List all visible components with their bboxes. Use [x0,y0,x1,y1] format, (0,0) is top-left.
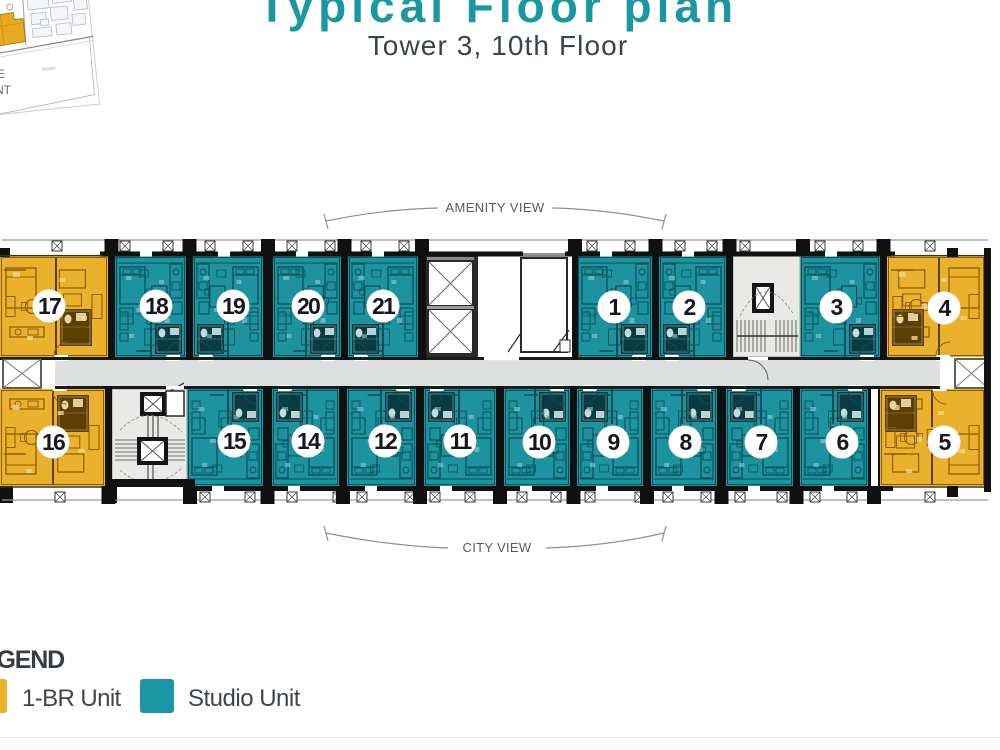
svg-text:E: E [0,67,5,81]
svg-text:Typical Floor plan: Typical Floor plan [258,0,738,32]
svg-text:17: 17 [38,293,61,319]
svg-text:1-BR Unit: 1-BR Unit [22,685,122,712]
svg-text:7: 7 [756,429,768,455]
svg-text:18: 18 [145,293,169,319]
svg-text:15: 15 [223,428,247,454]
svg-text:11: 11 [450,428,473,454]
svg-text:6: 6 [837,429,849,455]
svg-text:AMENITY VIEW: AMENITY VIEW [445,200,545,215]
svg-text:12: 12 [374,428,397,454]
svg-text:16: 16 [42,429,65,455]
svg-text:Studio Unit: Studio Unit [188,685,301,712]
svg-text:19: 19 [222,293,245,319]
svg-text:9: 9 [608,429,620,455]
svg-text:20: 20 [297,293,320,319]
svg-text:10: 10 [528,429,551,455]
svg-text:21: 21 [372,293,396,319]
svg-text:Tower 3, 10th Floor: Tower 3, 10th Floor [368,30,629,61]
svg-text:LEGEND: LEGEND [0,646,64,674]
svg-text:CITY VIEW: CITY VIEW [463,540,532,555]
svg-text:3: 3 [831,294,843,320]
svg-text:14: 14 [297,428,321,454]
svg-text:NT: NT [0,83,12,97]
svg-text:2: 2 [684,294,696,320]
